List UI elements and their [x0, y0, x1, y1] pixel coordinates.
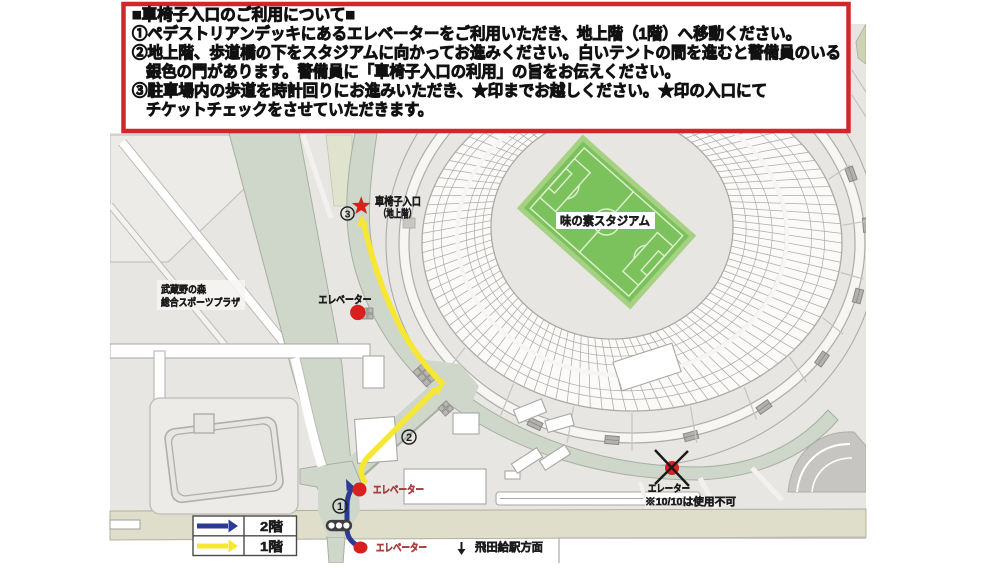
- svg-text:銀色の門があります。警備員に「車椅子入口の利用」の旨をお伝え: 銀色の門があります。警備員に「車椅子入口の利用」の旨をお伝えください。: [146, 62, 680, 81]
- svg-text:②地上階、歩道橋の下をスタジアムに向かってお進みください。白: ②地上階、歩道橋の下をスタジアムに向かってお進みください。白いテントの間を進むと…: [132, 43, 841, 62]
- svg-text:2階: 2階: [260, 519, 284, 534]
- svg-text:総合スポーツプラザ: 総合スポーツプラザ: [161, 296, 240, 309]
- svg-text:■車椅子入口のご利用について■: ■車椅子入口のご利用について■: [132, 5, 355, 24]
- svg-text:①ペデストリアンデッキにあるエレベーターをご利用いただき、地: ①ペデストリアンデッキにあるエレベーターをご利用いただき、地上階（1階）へ移動く…: [132, 24, 801, 43]
- svg-text:1階: 1階: [260, 539, 284, 554]
- svg-text:※10/10は使用不可: ※10/10は使用不可: [645, 495, 737, 508]
- svg-text:エレベーター: エレベーター: [376, 542, 427, 554]
- svg-text:3: 3: [345, 208, 351, 220]
- svg-text:飛田給駅方面: 飛田給駅方面: [474, 540, 543, 554]
- svg-text:味の素スタジアム: 味の素スタジアム: [560, 213, 650, 228]
- svg-text:エレーター: エレーター: [648, 483, 690, 495]
- svg-text:2: 2: [406, 432, 412, 444]
- svg-text:1: 1: [337, 501, 343, 513]
- svg-text:エレベーター: エレベーター: [373, 484, 424, 496]
- svg-text:（地上階）: （地上階）: [379, 207, 416, 220]
- svg-text:チケットチェックをさせていただきます。: チケットチェックをさせていただきます。: [146, 101, 433, 119]
- svg-text:武蔵野の森: 武蔵野の森: [161, 283, 207, 296]
- svg-text:エレベーター: エレベーター: [319, 294, 372, 306]
- svg-text:車椅子入口: 車椅子入口: [375, 194, 421, 208]
- svg-text:③駐車場内の歩道を時計回りにお進みいただき、★印までお越しく: ③駐車場内の歩道を時計回りにお進みいただき、★印までお越しください。★印の入口に…: [132, 81, 767, 100]
